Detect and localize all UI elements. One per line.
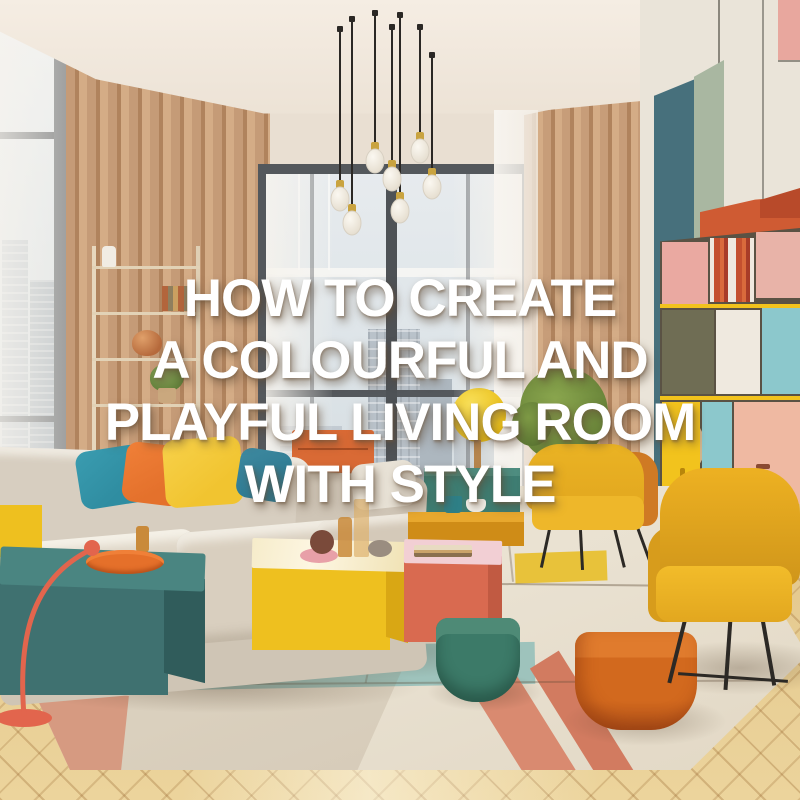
amber-vase <box>136 526 149 552</box>
decor-object <box>310 530 334 554</box>
orange-panel <box>760 188 800 218</box>
title-overlay: HOW TO CREATE A COLOURFUL AND PLAYFUL LI… <box>0 268 800 516</box>
coral-floor-lamp <box>0 510 134 740</box>
chair-leg <box>613 528 626 568</box>
chair-leg <box>760 614 776 686</box>
green-pouf <box>436 618 520 702</box>
table-front <box>252 564 390 650</box>
chair-leg <box>540 528 551 568</box>
title-line-1: HOW TO CREATE <box>0 268 800 330</box>
pink-panel <box>778 0 800 60</box>
chair-seat <box>656 566 792 622</box>
title-line-3: PLAYFUL LIVING ROOM <box>0 392 800 454</box>
hero-image: HOW TO CREATE A COLOURFUL AND PLAYFUL LI… <box>0 0 800 800</box>
title-line-4: WITH STYLE <box>0 454 800 516</box>
title-line-2: A COLOURFUL AND <box>0 330 800 392</box>
pendant-lights <box>296 0 476 240</box>
decor-stone <box>368 540 392 557</box>
amber-bottle <box>338 517 352 557</box>
book-stack <box>414 545 472 557</box>
chair-leg <box>579 530 584 570</box>
white-vase <box>102 246 116 267</box>
chair-leg <box>723 618 732 690</box>
